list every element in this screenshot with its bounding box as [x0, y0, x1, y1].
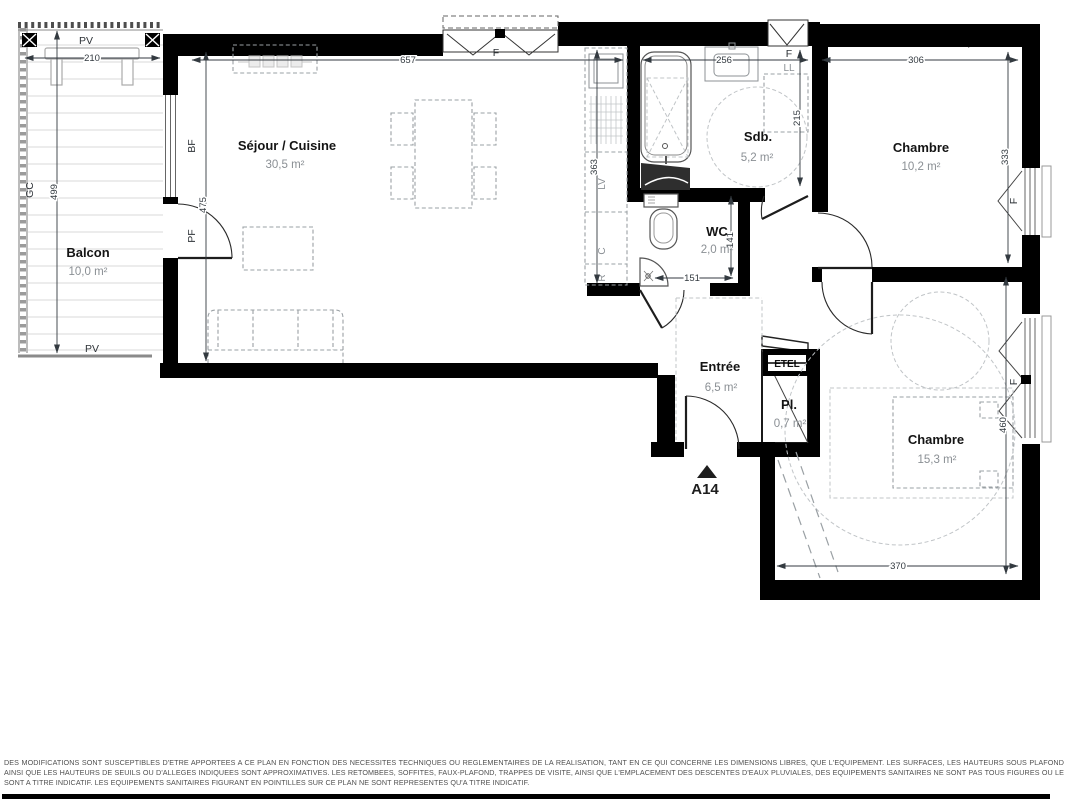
duct-lines — [778, 452, 838, 578]
unit-marker: A14 — [691, 465, 719, 498]
dim-wc-width: 151 — [684, 273, 700, 284]
room-chambre2-name: Chambre — [908, 432, 964, 447]
door-sdb — [761, 196, 808, 219]
elec-panel: ETEL — [763, 349, 812, 376]
window-f-label-sejour: F — [493, 47, 499, 59]
room-chambre2-area: 15,3 m² — [918, 454, 957, 466]
cooker-label: C — [597, 247, 608, 254]
room-balcon-area: 10,0 m² — [69, 266, 108, 278]
elec-panel-label: ETEL — [774, 359, 800, 370]
window-chambre1: F — [998, 166, 1051, 237]
room-chambre1-area: 10,2 m² — [902, 161, 941, 173]
window-sejour-top: F — [443, 16, 558, 59]
window-f-label-sdb: F — [786, 48, 792, 60]
room-sejour-name: Séjour / Cuisine — [238, 138, 336, 153]
window-f-label-chambre2: F — [1008, 379, 1020, 385]
fridge-label: R — [597, 274, 608, 281]
door-wc — [640, 290, 684, 328]
room-sdb-area: 5,2 m² — [741, 152, 774, 164]
gc-label: GC — [24, 182, 36, 198]
sofa — [208, 310, 343, 363]
door-chambre1 — [818, 213, 872, 268]
door-entrance — [686, 396, 739, 449]
room-sdb-name: Sdb. — [744, 129, 772, 144]
footer-rule — [2, 794, 1050, 799]
pv-top-label: PV — [79, 35, 93, 47]
dim-cuisine-height: 363 — [589, 159, 600, 175]
dim-chambre1-width: 306 — [908, 55, 924, 66]
disclaimer-text: DES MODIFICATIONS SONT SUSCEPTIBLES D'ET… — [4, 758, 1064, 788]
washer-label: LL — [783, 63, 795, 74]
dim-sejour-width: 657 — [400, 55, 416, 66]
room-chambre1-name: Chambre — [893, 140, 949, 155]
window-bf-left: BF — [166, 95, 199, 197]
room-labels: Séjour / Cuisine 30,5 m² Balcon 10,0 m² … — [66, 129, 964, 466]
walls — [160, 22, 1040, 600]
dim-chambre2-height: 460 — [998, 417, 1009, 433]
accessibility-circle-chambre2-small — [891, 292, 989, 390]
room-balcon-name: Balcon — [66, 245, 109, 260]
window-f-label-chambre1: F — [1008, 198, 1020, 204]
dishwasher-label: LV — [597, 178, 608, 190]
room-entree-name: Entrée — [700, 359, 740, 374]
room-placard-name: Pl. — [781, 397, 797, 412]
room-sejour-area: 30,5 m² — [266, 159, 305, 171]
dim-chambre2-width: 370 — [890, 561, 906, 572]
toilet — [644, 194, 678, 249]
window-bf-label: BF — [186, 139, 198, 152]
room-wc-area: 2,0 m² — [701, 244, 734, 256]
balcony: PV PV GC — [18, 25, 163, 356]
unit-label: A14 — [691, 481, 719, 498]
room-placard-area: 0,7 m² — [774, 418, 807, 430]
dim-balcon-width: 210 — [84, 53, 100, 64]
dim-sejour-height: 475 — [198, 197, 209, 213]
door-chambre2 — [822, 282, 872, 334]
bathtub — [641, 52, 691, 164]
floor-plan-drawing: PV PV GC — [0, 0, 1072, 800]
window-sdb-top: F LL — [768, 20, 808, 74]
kitchen-drainer-hatch — [589, 96, 623, 144]
dim-balcon-height: 499 — [49, 184, 60, 200]
pv-bottom-label: PV — [85, 343, 99, 355]
room-wc-name: WC — [706, 224, 728, 239]
vanity-counter — [641, 163, 690, 190]
entrance-arrow-icon — [697, 465, 717, 478]
balcony-post-left — [22, 33, 37, 47]
coffee-table — [243, 227, 313, 270]
balcony-post-right — [145, 33, 160, 47]
dim-sdb-width: 256 — [716, 55, 732, 66]
corner-washbasin — [640, 258, 668, 286]
door-pf-label: PF — [186, 229, 198, 242]
dim-sdb-height: 215 — [792, 110, 803, 126]
room-entree-area: 6,5 m² — [705, 382, 738, 394]
dining-table — [391, 100, 496, 208]
floor-plan-page: PV PV GC — [0, 0, 1072, 800]
dim-chambre1-height: 333 — [1000, 149, 1011, 165]
